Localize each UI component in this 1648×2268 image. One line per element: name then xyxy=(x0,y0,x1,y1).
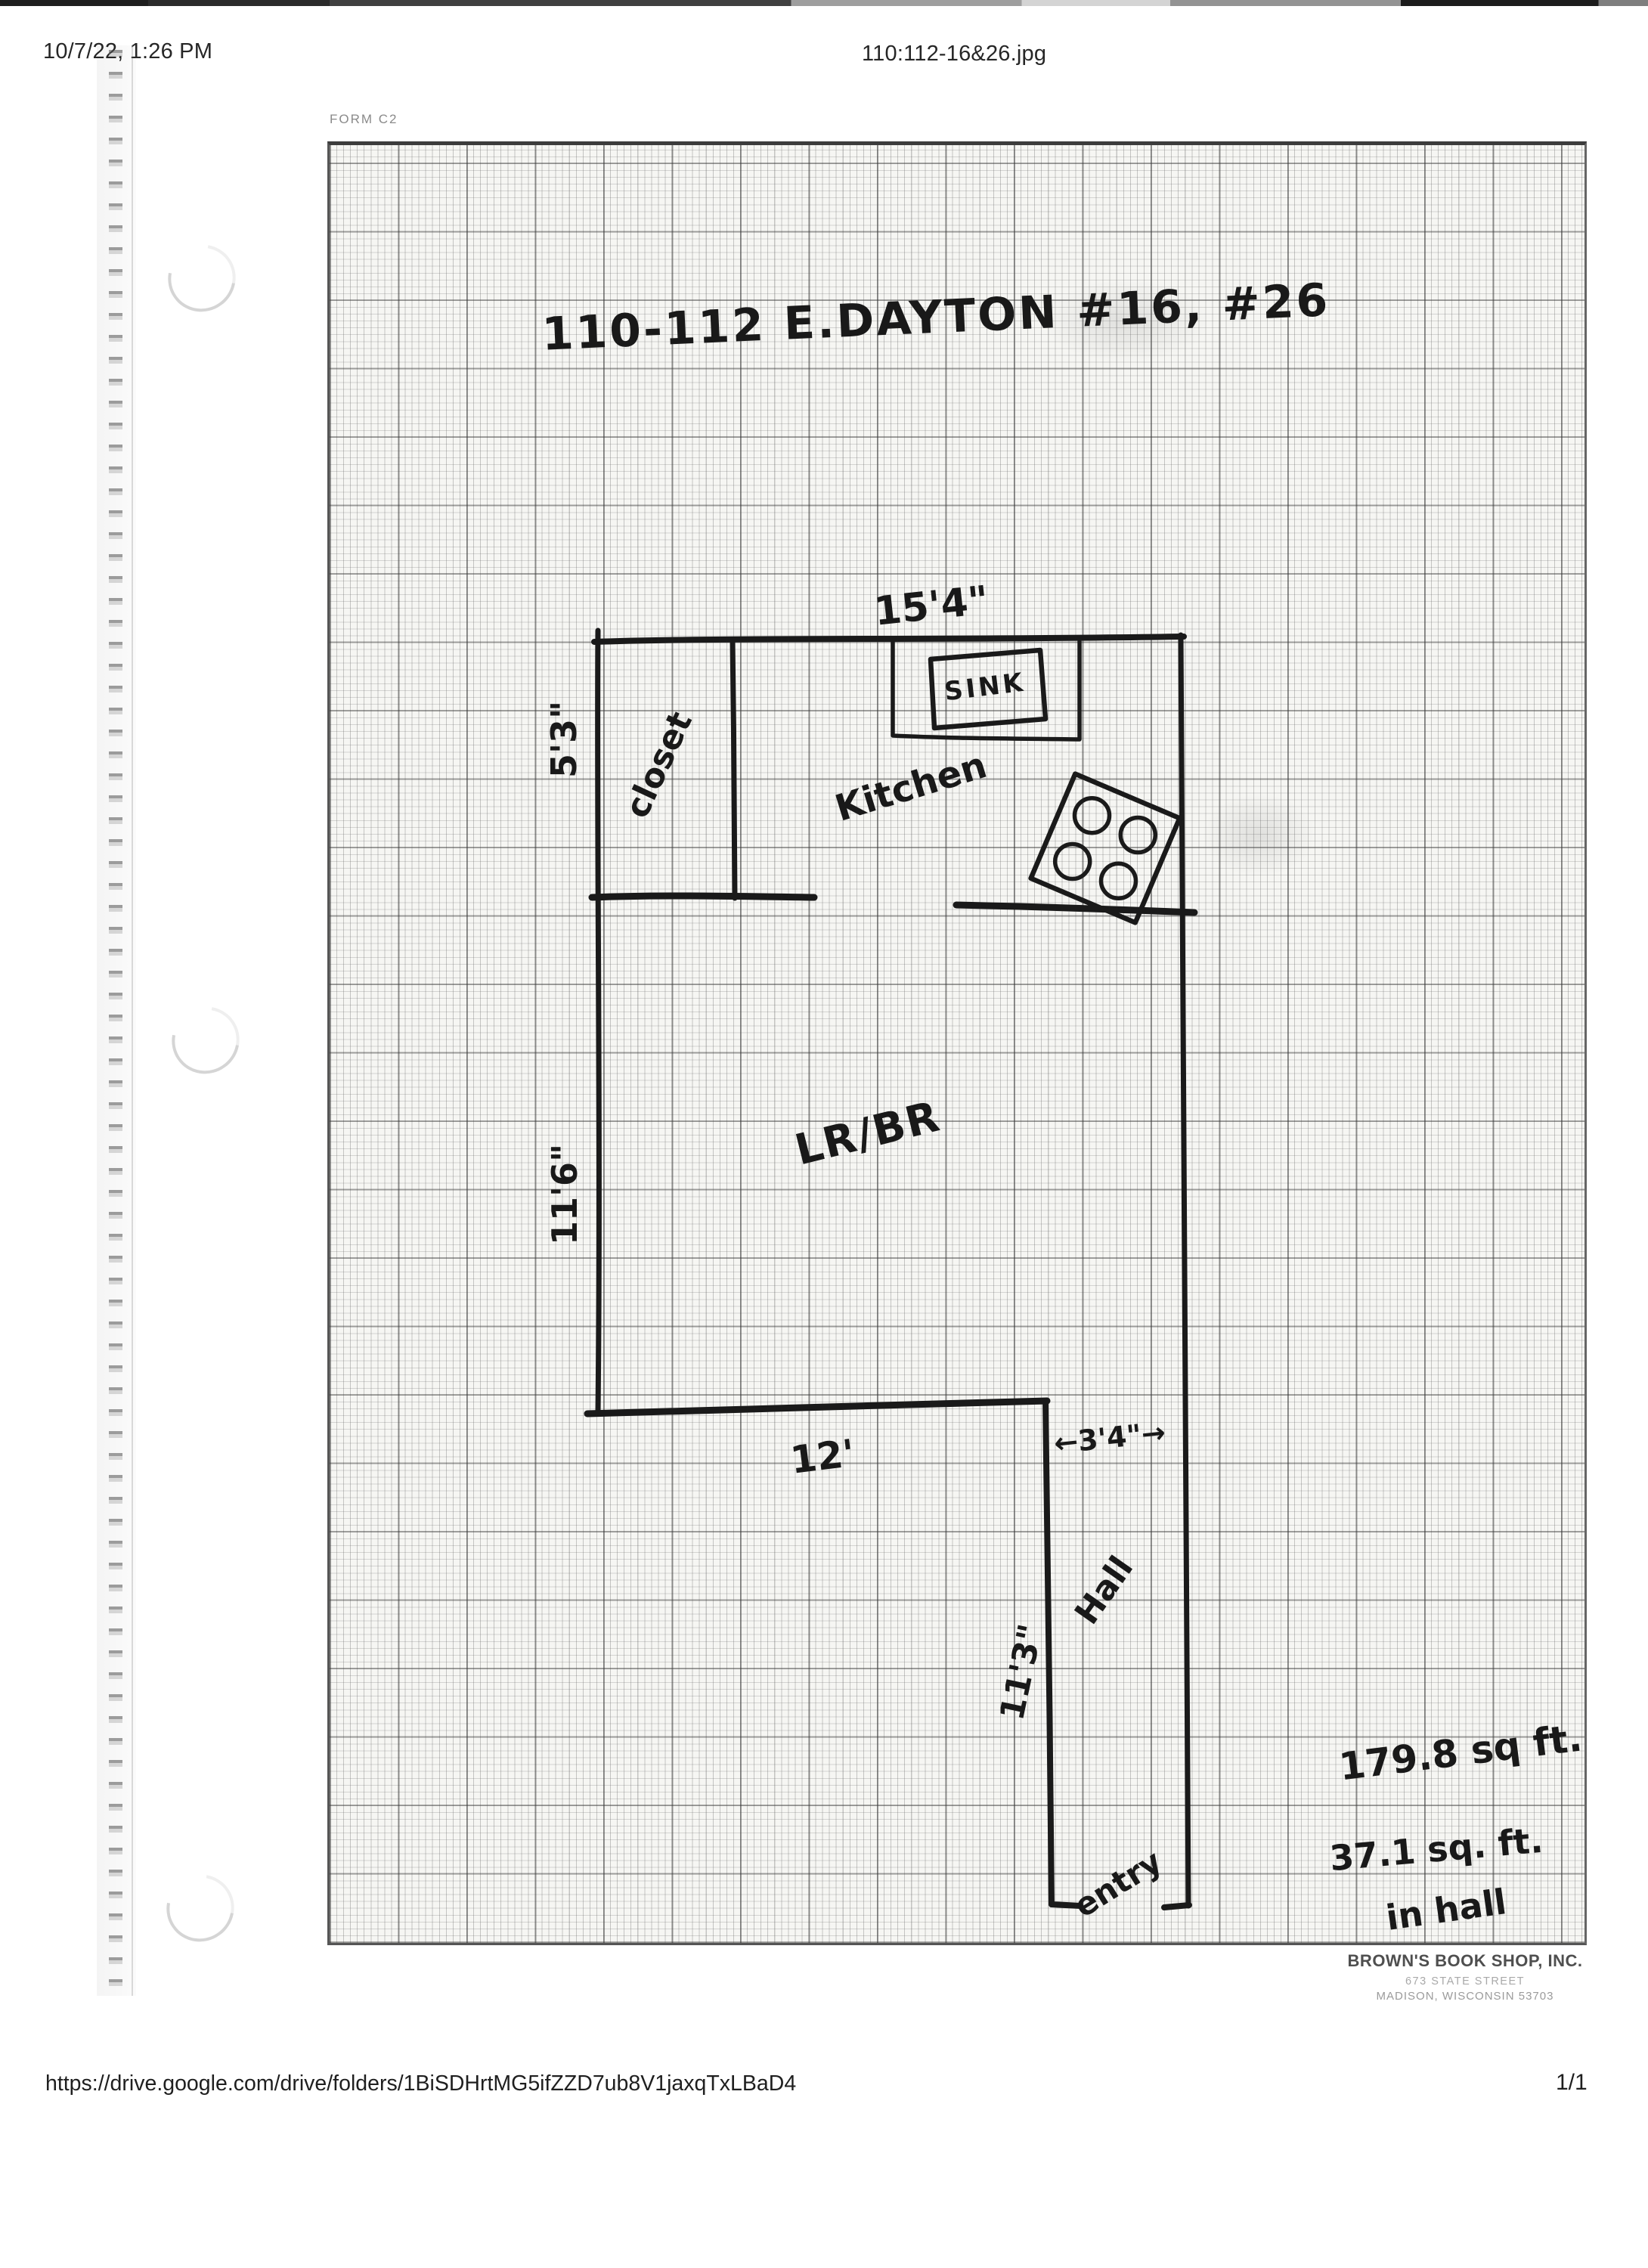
dimension-living-width: 12' xyxy=(788,1434,857,1479)
book-shop-stamp: BROWN'S BOOK SHOP, INC. 673 STATE STREET… xyxy=(1340,1951,1591,2003)
stove-outline xyxy=(1031,774,1180,923)
stamp-name: BROWN'S BOOK SHOP, INC. xyxy=(1340,1951,1591,1971)
wall-right xyxy=(1181,635,1188,1906)
print-source-url: https://drive.google.com/drive/folders/1… xyxy=(45,2071,796,2096)
stove-burner xyxy=(1120,818,1155,853)
scanned-page: 10/7/22, 1:26 PM 110:112-16&26.jpg FORM … xyxy=(0,0,1648,2268)
livingroom-bottom-wall xyxy=(587,1401,1047,1414)
closet-bottom-wall xyxy=(592,896,814,897)
dimension-living-height: 11'6" xyxy=(547,1144,582,1245)
entry-tick-right xyxy=(1164,1905,1189,1907)
stamp-address-city: MADISON, WISCONSIN 53703 xyxy=(1340,1990,1591,2003)
dimension-closet-height: 5'3" xyxy=(547,701,581,778)
stove-burner xyxy=(1055,844,1090,879)
dimension-kitchen-width: 15'4" xyxy=(872,581,990,632)
stove-burner xyxy=(1075,798,1110,833)
stove-burner xyxy=(1101,863,1136,898)
wall-top xyxy=(594,637,1184,642)
wall-left xyxy=(598,631,599,1413)
closet-divider-wall xyxy=(733,640,735,898)
stamp-address-street: 673 STATE STREET xyxy=(1340,1975,1591,1988)
hall-left-wall xyxy=(1045,1401,1052,1904)
kitchen-bottom-wall xyxy=(956,905,1194,912)
page-number: 1/1 xyxy=(1556,2070,1588,2096)
